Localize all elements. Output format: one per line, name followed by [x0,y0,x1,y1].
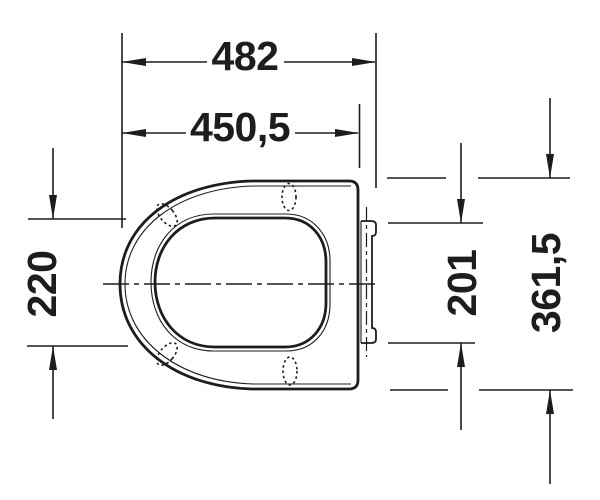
seat-opening-outer-line [151,214,330,351]
bumper-top-right [282,184,296,211]
arrowhead-right [352,58,376,66]
arrowhead-down [457,199,465,223]
dimension-width-seat: 450,5 [122,104,360,168]
arrowhead-up [49,346,57,370]
dim-label-height-hinge: 201 [439,250,485,317]
seat-opening [155,218,326,347]
seat-top-view [103,181,376,389]
arrowhead-down [546,154,554,178]
technical-drawing: 482 450,5 220 201 3 [0,0,600,500]
dim-label-width-overall: 482 [212,33,279,79]
hinge-bracket [361,207,376,357]
hinge-bracket-outline [361,221,376,343]
arrowhead-down [49,195,57,219]
bumper-bottom-right [283,357,297,385]
dim-label-height-left: 220 [19,251,65,318]
arrowhead-right [335,129,359,137]
dimension-height-hinge: 201 [388,143,485,430]
dim-label-width-seat: 450,5 [190,104,290,150]
arrowhead-left [122,58,146,66]
dim-label-height-overall: 361,5 [523,233,569,333]
arrowhead-left [122,129,146,137]
arrowhead-up [457,343,465,367]
arrowhead-up [546,390,554,414]
